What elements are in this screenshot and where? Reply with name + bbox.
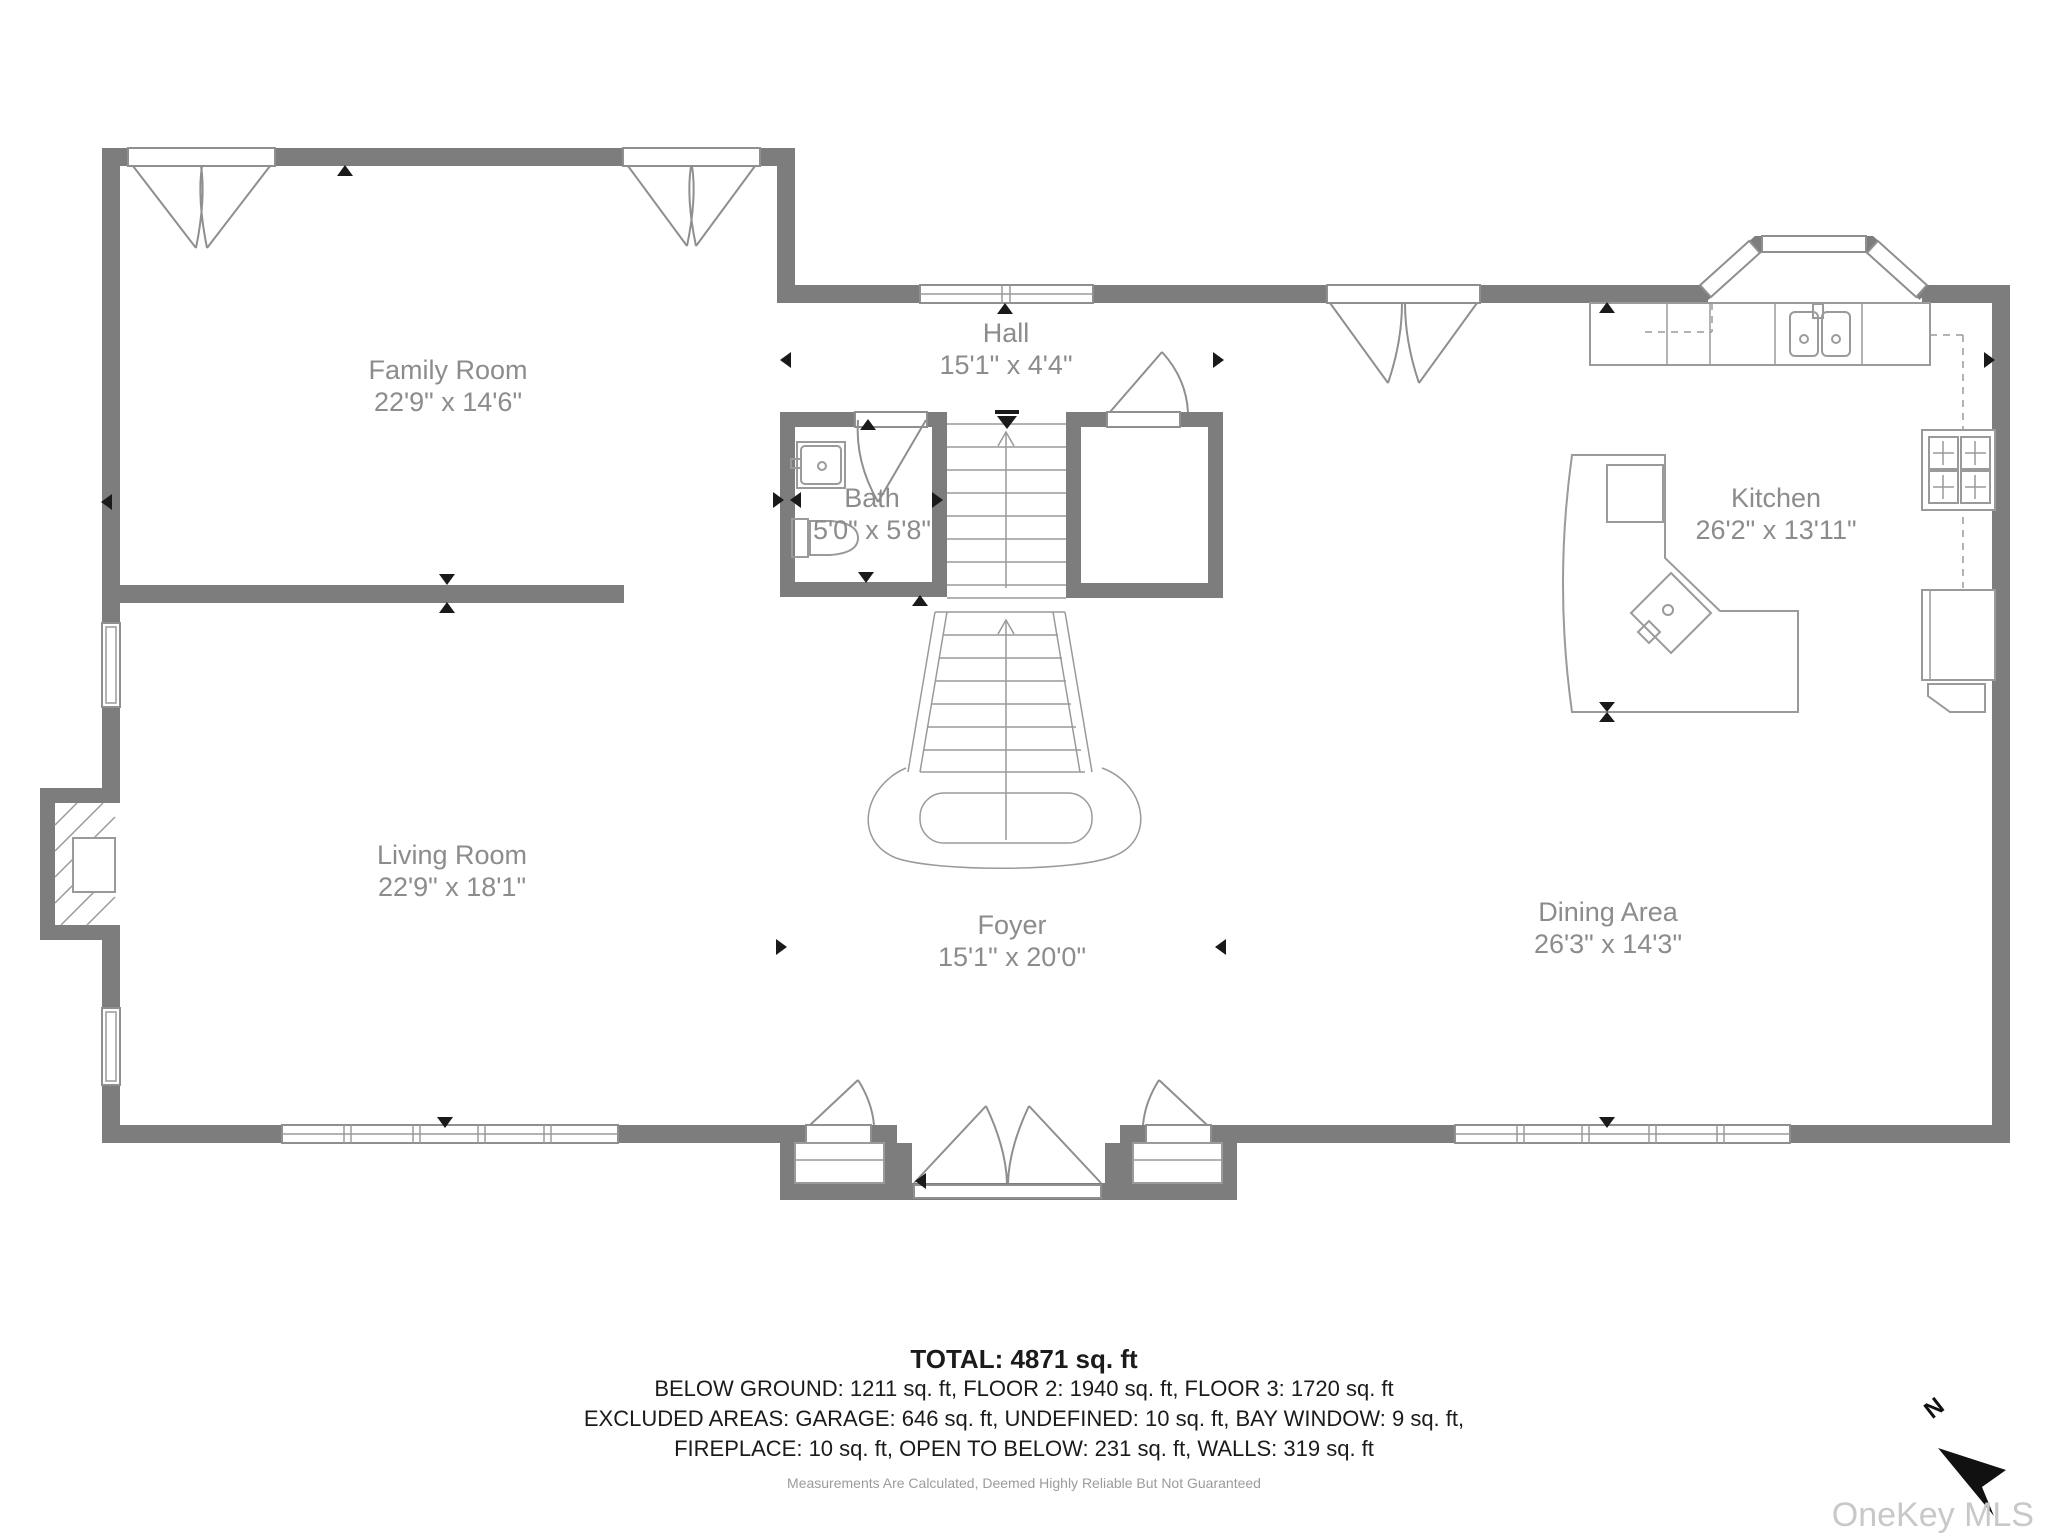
svg-text:Living Room: Living Room (377, 840, 527, 870)
svg-text:Dining Area: Dining Area (1538, 897, 1679, 927)
bay-window (1700, 236, 1927, 297)
room-label-living-room: Living Room 22'9" x 18'1" (377, 840, 527, 902)
door-closet (1107, 352, 1188, 427)
svg-text:22'9" x 14'6": 22'9" x 14'6" (374, 387, 522, 417)
window-left-lower (102, 1008, 120, 1085)
window-dining-bottom (1455, 1125, 1790, 1143)
window-family-left (128, 148, 275, 248)
door-entry-right-side (1143, 1080, 1211, 1143)
disclaimer-text: Measurements Are Calculated, Deemed High… (0, 1475, 2048, 1491)
watermark: OneKey MLS (1832, 1496, 2034, 1535)
fireplace (55, 803, 115, 925)
svg-text:15'1" x 4'4": 15'1" x 4'4" (939, 350, 1072, 380)
kitchen-refrigerator (1922, 590, 1995, 712)
window-left-upper (102, 623, 120, 707)
room-label-dining-area: Dining Area 26'3" x 14'3" (1534, 897, 1682, 959)
svg-text:Bath: Bath (844, 483, 900, 513)
door-entry-main (914, 1106, 1101, 1198)
kitchen-stove (1922, 430, 1995, 510)
room-label-bath: Bath 5'0" x 5'8" (813, 483, 931, 545)
floor-plan-page: Family Room 22'9" x 14'6" Hall 15'1" x 4… (0, 0, 2048, 1536)
excluded-areas-text-2: FIREPLACE: 10 sq. ft, OPEN TO BELOW: 231… (0, 1434, 2048, 1464)
kitchen-upper-cabinets (1645, 303, 1963, 588)
doors (795, 285, 1480, 1198)
svg-text:Hall: Hall (983, 318, 1030, 348)
svg-text:15'1" x 20'0": 15'1" x 20'0" (938, 942, 1086, 972)
door-dining-double (1327, 285, 1480, 383)
total-area-text: TOTAL: 4871 sq. ft (0, 1344, 2048, 1374)
svg-text:Family Room: Family Room (368, 355, 527, 385)
bath-sink (791, 442, 845, 488)
window-living-bottom (282, 1125, 618, 1143)
svg-text:Foyer: Foyer (977, 910, 1046, 940)
kitchen-sink (1790, 304, 1850, 356)
svg-text:26'2" x 13'11": 26'2" x 13'11" (1695, 515, 1856, 545)
staircase (868, 410, 1141, 868)
room-label-kitchen: Kitchen 26'2" x 13'11" (1695, 483, 1856, 545)
room-label-hall: Hall 15'1" x 4'4" (939, 318, 1072, 380)
room-label-foyer: Foyer 15'1" x 20'0" (938, 910, 1086, 972)
stairs-landing (868, 768, 1141, 868)
svg-text:22'9" x 18'1": 22'9" x 18'1" (378, 872, 526, 902)
room-label-family-room: Family Room 22'9" x 14'6" (368, 355, 527, 417)
door-entry-left-side (806, 1080, 874, 1143)
excluded-areas-text-1: EXCLUDED AREAS: GARAGE: 646 sq. ft, UNDE… (0, 1404, 2048, 1434)
window-hall (920, 285, 1093, 303)
svg-text:Kitchen: Kitchen (1731, 483, 1821, 513)
kitchen-counter (1590, 303, 1930, 365)
stairs-lower-flight (908, 612, 1092, 840)
window-family-right (623, 148, 760, 246)
floor-plan-drawing: Family Room 22'9" x 14'6" Hall 15'1" x 4… (0, 0, 2048, 1536)
svg-text:26'3" x 14'3": 26'3" x 14'3" (1534, 929, 1682, 959)
area-summary: TOTAL: 4871 sq. ft BELOW GROUND: 1211 sq… (0, 1344, 2048, 1491)
stairs-upper-flight (947, 410, 1066, 598)
svg-text:5'0" x 5'8": 5'0" x 5'8" (813, 515, 931, 545)
floors-area-text: BELOW GROUND: 1211 sq. ft, FLOOR 2: 1940… (0, 1374, 2048, 1404)
